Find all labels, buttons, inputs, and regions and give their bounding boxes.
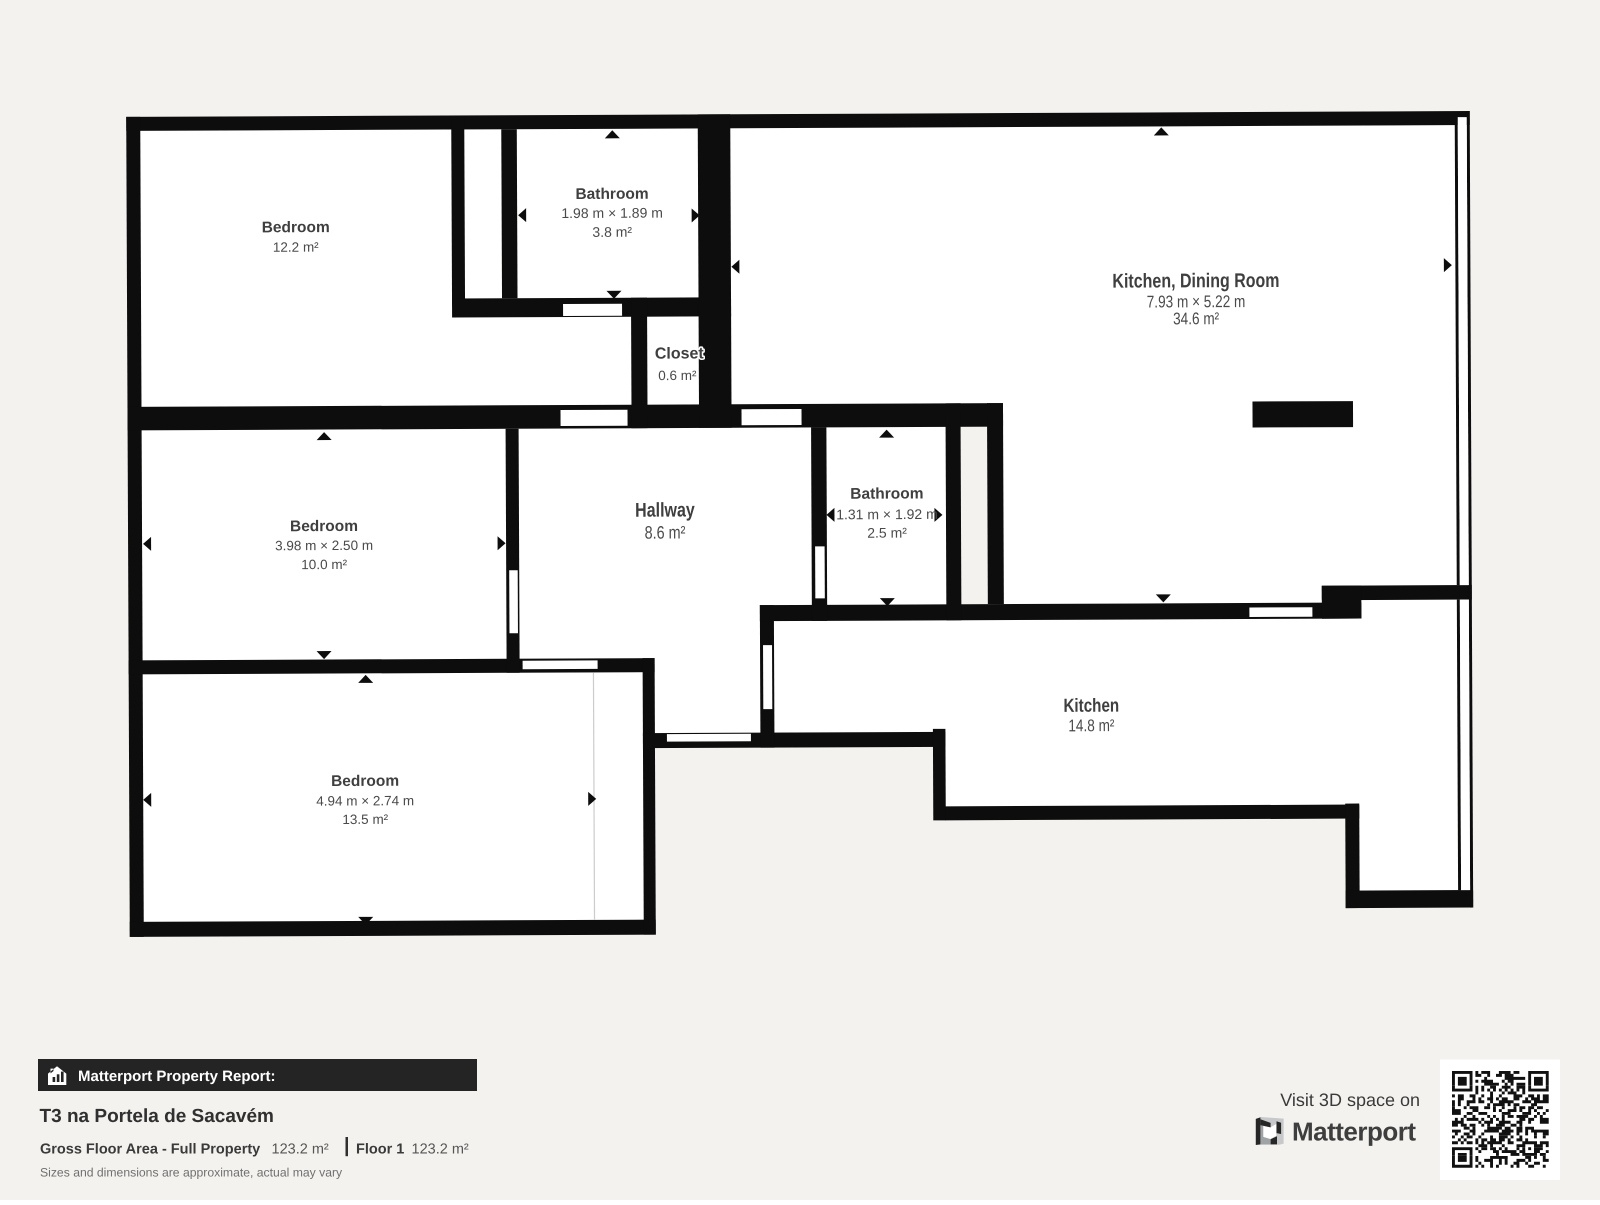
svg-text:1.31 m × 1.92 m: 1.31 m × 1.92 m xyxy=(836,506,938,522)
svg-text:10.0 m²: 10.0 m² xyxy=(301,557,347,572)
svg-text:Floor 1: Floor 1 xyxy=(356,1141,404,1157)
svg-text:Visit 3D space on: Visit 3D space on xyxy=(1280,1090,1420,1110)
svg-text:1.98 m × 1.89 m: 1.98 m × 1.89 m xyxy=(561,205,663,221)
svg-text:Sizes and dimensions are appro: Sizes and dimensions are approximate, ac… xyxy=(40,1166,343,1180)
svg-text:3.8 m²: 3.8 m² xyxy=(592,224,632,240)
svg-text:Kitchen, Dining Room: Kitchen, Dining Room xyxy=(1112,270,1279,293)
svg-text:34.6 m²: 34.6 m² xyxy=(1173,309,1219,328)
svg-text:12.2 m²: 12.2 m² xyxy=(273,240,319,255)
svg-text:Matterport Property Report:: Matterport Property Report: xyxy=(78,1068,276,1085)
svg-text:Bathroom: Bathroom xyxy=(575,186,648,203)
svg-text:123.2 m²: 123.2 m² xyxy=(272,1141,329,1157)
svg-text:2.5 m²: 2.5 m² xyxy=(867,525,907,541)
svg-text:8.6 m²: 8.6 m² xyxy=(645,522,686,542)
svg-text:13.5 m²: 13.5 m² xyxy=(342,812,388,827)
svg-text:Gross Floor Area - Full Proper: Gross Floor Area - Full Property xyxy=(40,1141,260,1157)
svg-text:Hallway: Hallway xyxy=(635,499,695,521)
svg-text:Matterport: Matterport xyxy=(1292,1117,1416,1147)
svg-text:Bathroom: Bathroom xyxy=(850,485,923,502)
svg-text:Closet: Closet xyxy=(655,345,705,362)
svg-text:0.6 m²: 0.6 m² xyxy=(658,368,697,383)
svg-text:Kitchen: Kitchen xyxy=(1063,696,1119,717)
svg-text:Bedroom: Bedroom xyxy=(290,518,358,535)
svg-text:123.2 m²: 123.2 m² xyxy=(412,1141,469,1157)
svg-text:T3 na Portela de Sacavém: T3 na Portela de Sacavém xyxy=(40,1106,274,1127)
svg-text:14.8 m²: 14.8 m² xyxy=(1068,716,1114,735)
svg-text:Bedroom: Bedroom xyxy=(262,219,330,236)
svg-text:3.98 m × 2.50 m: 3.98 m × 2.50 m xyxy=(275,538,373,553)
svg-text:Bedroom: Bedroom xyxy=(331,773,399,790)
svg-text:4.94 m × 2.74 m: 4.94 m × 2.74 m xyxy=(316,793,414,808)
